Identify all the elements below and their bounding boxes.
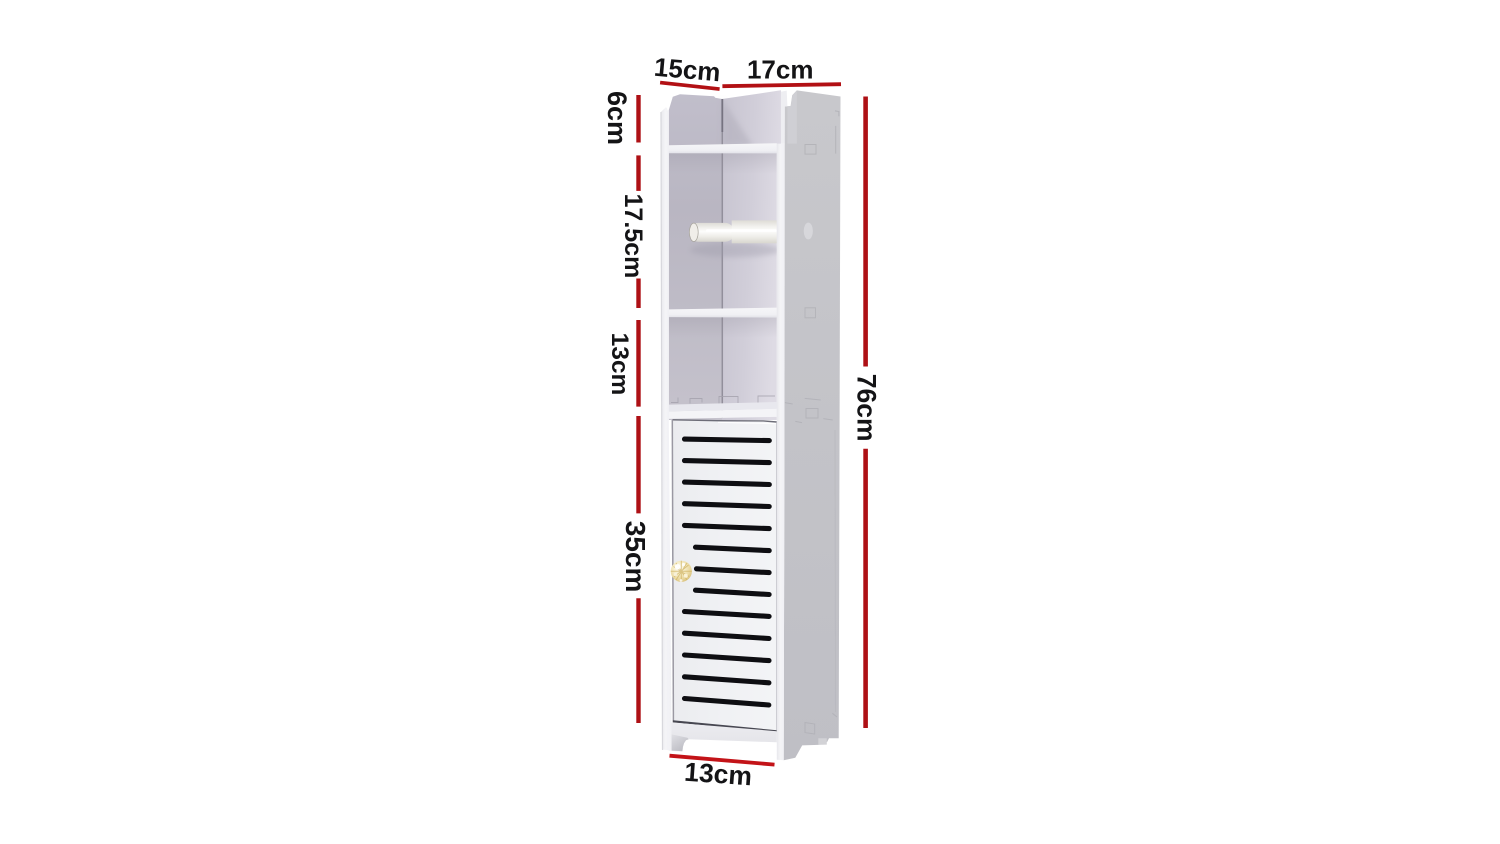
svg-text:17.5cm: 17.5cm <box>619 194 647 279</box>
svg-text:13cm: 13cm <box>606 333 633 396</box>
svg-text:35cm: 35cm <box>620 521 651 593</box>
svg-text:6cm: 6cm <box>602 91 632 145</box>
svg-text:13cm: 13cm <box>683 757 753 792</box>
svg-text:15cm: 15cm <box>653 52 722 88</box>
svg-text:17cm: 17cm <box>747 55 814 85</box>
svg-text:76cm: 76cm <box>851 374 881 442</box>
